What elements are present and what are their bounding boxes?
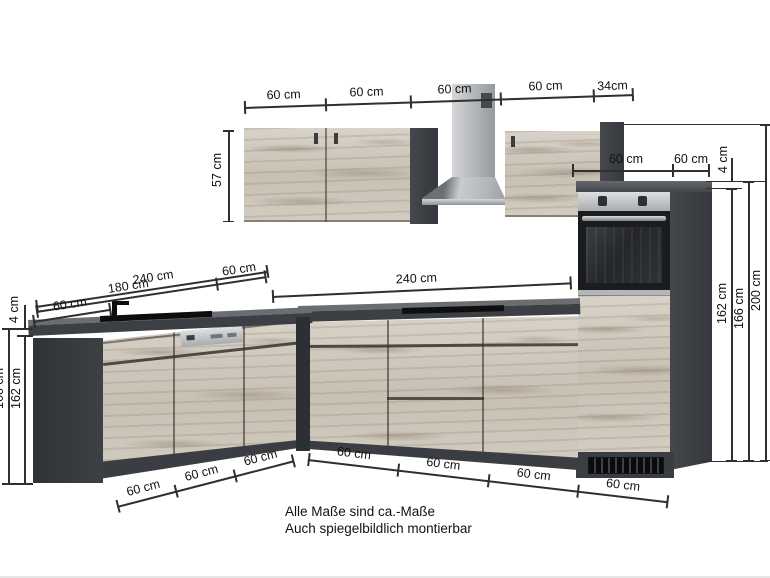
base-run-right-drawer-line [302, 343, 578, 348]
oven [578, 211, 670, 290]
dim-line-200 [765, 124, 767, 461]
dim-162-label: 162 cm [716, 283, 729, 324]
dim-bottom-right-3: 60 cm [516, 466, 551, 482]
dim-bottom-right-2: 60 cm [426, 456, 461, 472]
oven-window [586, 227, 662, 283]
wall-cabinet-left-side-panel [410, 128, 438, 224]
dim-line-tall-top: 60 cm 60 cm [572, 170, 710, 172]
corner-post [296, 317, 310, 451]
ref-line-166-top [706, 181, 766, 182]
faucet [112, 303, 117, 318]
base-run-left-side-panel [33, 338, 103, 483]
footer-note: Alle Maße sind ca.-Maße Auch spiegelbild… [285, 503, 472, 537]
dim-line-top-run: 60 cm 60 cm 60 cm 60 cm 34cm [244, 94, 633, 108]
oven-control-panel [578, 192, 670, 211]
dim-upper-height-label: 57 cm [211, 153, 224, 187]
wall-cabinet-left-door-gap [325, 128, 327, 222]
dim-line-166 [748, 181, 750, 461]
dishwasher-button [210, 334, 222, 339]
base-run-right-door-gap [482, 316, 484, 470]
footer-note-line2: Auch spiegelbildlich montierbar [285, 520, 472, 537]
dishwasher-button [227, 333, 236, 338]
dim-gap-right-label: 4 cm [717, 146, 730, 173]
dim-top-segment-5: 34cm [597, 79, 628, 93]
oven-knob [638, 196, 647, 206]
kitchen-dimension-diagram: 60 cm 60 cm 60 cm 60 cm 34cm 57 cm 60 cm… [0, 0, 770, 578]
dim-bottom-right-1: 60 cm [336, 445, 371, 461]
wall-cabinet-left [244, 128, 410, 222]
wall-cabinet-left-handle [314, 133, 318, 144]
oven-handle [582, 216, 666, 221]
dim-top-segment-3: 60 cm [437, 82, 471, 96]
dim-line-upper-height [228, 130, 230, 222]
dim-right-run-total: 240 cm [396, 272, 438, 286]
dishwasher-button [186, 335, 194, 341]
dim-line-right-run-total: 240 cm [272, 282, 571, 297]
tall-oven-cabinet-door [578, 295, 670, 452]
ref-line-left-bottom [2, 483, 33, 485]
tall-oven-cabinet-side-panel [670, 192, 712, 470]
dim-left-162-label: 162 cm [10, 368, 23, 409]
dim-top-segment-2: 60 cm [349, 85, 383, 99]
dim-bottom-left-2: 60 cm [183, 463, 219, 484]
dim-sink-cabinet: 60 cm [52, 296, 88, 314]
dim-line-left-162 [24, 335, 26, 483]
oven-knob [598, 196, 607, 206]
plinth-vent-grille [588, 457, 664, 474]
base-run-left-door-gap [173, 332, 175, 460]
dim-gap-left-label: 4 cm [8, 296, 21, 323]
dim-line-gap-left [24, 305, 26, 328]
drawer-unit-gap [387, 397, 484, 400]
ref-line-left-166-top [2, 328, 32, 330]
ref-line-bottom [700, 461, 768, 462]
ref-line-200-top [624, 124, 766, 125]
dim-166-label: 166 cm [733, 288, 746, 329]
dim-200-label: 200 cm [750, 270, 763, 311]
faucet-spout [112, 301, 129, 305]
dim-top-segment-1: 60 cm [266, 88, 300, 102]
wall-cabinet-left-handle [334, 133, 338, 144]
dim-line-gap-right [731, 158, 733, 181]
dim-left-166-label: 166 cm [0, 368, 6, 409]
dim-tall-top-2: 60 cm [674, 153, 708, 166]
dim-tall-top-1: 60 cm [609, 153, 643, 166]
dim-top-segment-4: 60 cm [528, 79, 562, 93]
dim-bottom-left-1: 60 cm [125, 478, 161, 499]
wall-cabinet-right-handle [511, 136, 515, 147]
tall-oven-cabinet-top [576, 181, 712, 192]
range-hood-canopy-lip [422, 199, 505, 205]
dim-left-run-main: 180 cm [107, 277, 149, 295]
base-run-left-door-gap [243, 324, 245, 454]
footer-note-line1: Alle Maße sind ca.-Maße [285, 503, 472, 520]
dim-left-run-corner: 60 cm [221, 261, 257, 278]
dim-bottom-right-4: 60 cm [605, 477, 640, 493]
